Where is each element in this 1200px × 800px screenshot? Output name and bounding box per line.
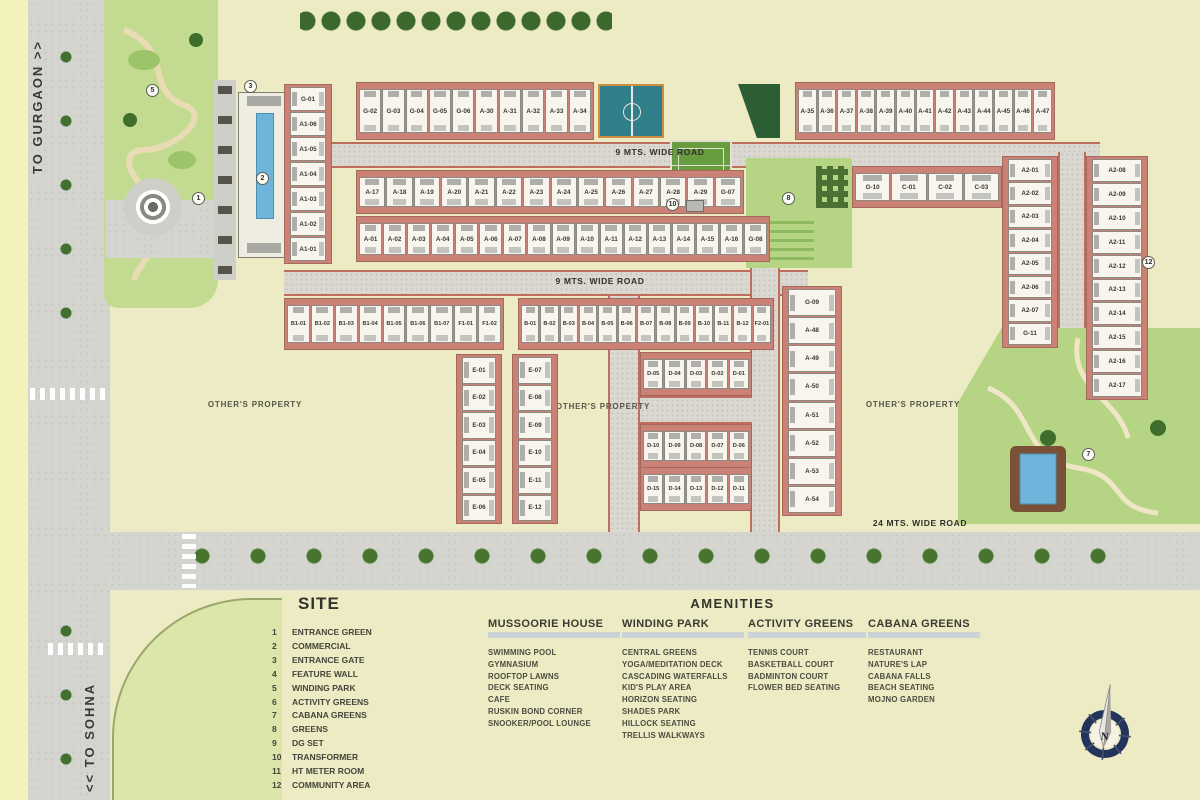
plot-a2-15: A2-15 xyxy=(1092,326,1142,349)
site-legend-list: 1ENTRANCE GREEN2COMMERCIAL3ENTRANCE GATE… xyxy=(272,626,442,793)
legend-item: HORIZON SEATING xyxy=(622,694,744,706)
plot-a-51: A-51 xyxy=(788,402,836,429)
plot-d-12: D-12 xyxy=(707,474,727,504)
site-legend-num: 12 xyxy=(272,779,292,793)
cabana-greens xyxy=(958,328,1200,524)
site-master-plan: TO GURGAON >> << TO SOHNA G-01A1-06A1-05… xyxy=(0,0,1200,800)
plot-g-11: G-11 xyxy=(1008,323,1052,345)
plot-a-40: A-40 xyxy=(896,89,915,133)
plot-d-01: D-01 xyxy=(729,359,749,389)
commercial-roof-top xyxy=(247,96,281,106)
plot-row-3: A-01A-02A-03A-04A-05A-06A-07A-08A-09A-10… xyxy=(356,216,770,262)
plot-row-d2: D-10D-09D-08D-07D-06 xyxy=(640,424,752,468)
compass-rose-icon: N xyxy=(1072,682,1138,770)
plot-b-05: B-05 xyxy=(598,305,616,343)
plot-col-a2-right: A2-08A2-09A2-10A2-11A2-12A2-13A2-14A2-15… xyxy=(1086,156,1148,400)
legend-item: RUSKIN BOND CORNER xyxy=(488,706,620,718)
amenities-col-activity-greens-items: TENNIS COURTBASKETBALL COURTBADMINTON CO… xyxy=(748,647,866,694)
site-legend-num: 6 xyxy=(272,696,292,710)
site-legend-num: 2 xyxy=(272,640,292,654)
legend-item: TENNIS COURT xyxy=(748,647,866,659)
site-legend-label: ACTIVITY GREENS xyxy=(292,696,369,710)
plot-a-18: A-18 xyxy=(386,177,412,207)
legend-item: CENTRAL GREENS xyxy=(622,647,744,659)
plot-a-03: A-03 xyxy=(407,223,430,255)
plot-e-02: E-02 xyxy=(462,385,496,412)
plot-a-23: A-23 xyxy=(523,177,549,207)
plot-a-43: A-43 xyxy=(955,89,974,133)
plot-a2-06: A2-06 xyxy=(1008,276,1052,298)
plot-d-13: D-13 xyxy=(686,474,706,504)
plot-a-27: A-27 xyxy=(633,177,659,207)
plot-row-b: B-01B-02B-03B-04B-05B-06B-07B-08B-09B-10… xyxy=(518,298,774,350)
plot-e-07: E-07 xyxy=(518,357,552,384)
left-road-median-trees-top xyxy=(60,10,72,360)
plot-b-12: B-12 xyxy=(733,305,751,343)
compass-n-label: N xyxy=(1100,731,1109,744)
plot-g-08: G-08 xyxy=(744,223,767,255)
plot-b1-01: B1-01 xyxy=(287,305,310,343)
site-legend-title: SITE xyxy=(298,594,340,614)
plot-d-10: D-10 xyxy=(643,431,663,461)
plot-a-08: A-08 xyxy=(527,223,550,255)
plot-e-06: E-06 xyxy=(462,495,496,522)
plot-a-15: A-15 xyxy=(696,223,719,255)
plot-g-09: G-09 xyxy=(788,289,836,316)
plot-b1-07: B1-07 xyxy=(430,305,453,343)
legend-item: KID'S PLAY AREA xyxy=(622,682,744,694)
plot-a-05: A-05 xyxy=(455,223,478,255)
legend-item: CABANA FALLS xyxy=(868,671,980,683)
amenities-title: AMENITIES xyxy=(600,596,865,611)
plot-d-14: D-14 xyxy=(664,474,684,504)
road-9m-mid-label: 9 MTS. WIDE ROAD xyxy=(500,276,700,286)
plot-a-26: A-26 xyxy=(605,177,631,207)
plot-a-21: A-21 xyxy=(468,177,494,207)
plot-g-07: G-07 xyxy=(715,177,741,207)
plot-e-12: E-12 xyxy=(518,495,552,522)
plot-a-22: A-22 xyxy=(496,177,522,207)
site-legend-label: CABANA GREENS xyxy=(292,709,367,723)
plot-col-a48: G-09A-48A-49A-50A-51A-52A-53A-54 xyxy=(782,286,842,516)
site-legend-row: 2COMMERCIAL xyxy=(272,640,442,654)
plot-a2-13: A2-13 xyxy=(1092,279,1142,302)
legend-item: YOGA/MEDITATION DECK xyxy=(622,659,744,671)
amenities-col-winding-park-title: WINDING PARK xyxy=(622,618,744,638)
plot-f1-01: F1-01 xyxy=(454,305,477,343)
site-legend-num: 8 xyxy=(272,723,292,737)
plot-b-11: B-11 xyxy=(714,305,732,343)
amenities-col-mussoorie-items: SWIMMING POOLGYMNASIUMROOFTOP LAWNSDECK … xyxy=(488,647,620,730)
legend-item: MOJNO GARDEN xyxy=(868,694,980,706)
others-property-right: OTHER'S PROPERTY xyxy=(858,400,968,409)
road-9m-top-label: 9 MTS. WIDE ROAD xyxy=(560,147,760,157)
site-legend-row: 7CABANA GREENS xyxy=(272,709,442,723)
site-legend-row: 9DG SET xyxy=(272,737,442,751)
plot-e-05: E-05 xyxy=(462,467,496,494)
plot-g-01: G-01 xyxy=(290,87,326,111)
plot-b-06: B-06 xyxy=(618,305,636,343)
plot-d-02: D-02 xyxy=(707,359,727,389)
plot-d-08: D-08 xyxy=(686,431,706,461)
site-legend-label: COMMERCIAL xyxy=(292,640,351,654)
site-legend-row: 10TRANSFORMER xyxy=(272,751,442,765)
site-legend-row: 4FEATURE WALL xyxy=(272,668,442,682)
plot-boundary-strip xyxy=(0,0,28,800)
plot-a-46: A-46 xyxy=(1014,89,1033,133)
plot-e-10: E-10 xyxy=(518,440,552,467)
amenities-col-cabana-greens-items: RESTAURANTNATURE'S LAPCABANA FALLSBEACH … xyxy=(868,647,980,706)
plot-a-49: A-49 xyxy=(788,345,836,372)
commercial-roof-bottom xyxy=(247,243,281,253)
plot-a2-04: A2-04 xyxy=(1008,229,1052,251)
site-legend-label: GREENS xyxy=(292,723,328,737)
plot-a2-07: A2-07 xyxy=(1008,299,1052,321)
amenities-col-cabana-greens-title: CABANA GREENS xyxy=(868,618,980,638)
marker-community-area: 12 xyxy=(1142,256,1155,269)
plot-f1-02: F1-02 xyxy=(478,305,501,343)
plot-a2-08: A2-08 xyxy=(1092,159,1142,182)
garden-beds xyxy=(816,166,848,208)
legend-item: BASKETBALL COURT xyxy=(748,659,866,671)
plot-d-15: D-15 xyxy=(643,474,663,504)
entrance-parking-strip xyxy=(214,80,236,280)
basketball-court xyxy=(598,84,664,138)
site-legend-num: 10 xyxy=(272,751,292,765)
plot-a-36: A-36 xyxy=(818,89,837,133)
plot-a2-05: A2-05 xyxy=(1008,253,1052,275)
plot-g-02: G-02 xyxy=(359,89,381,133)
plot-row-d3: D-15D-14D-13D-12D-11 xyxy=(640,467,752,511)
plot-e-09: E-09 xyxy=(518,412,552,439)
marker-commercial: 2 xyxy=(256,172,269,185)
plot-a-30: A-30 xyxy=(475,89,497,133)
plot-a-19: A-19 xyxy=(414,177,440,207)
site-legend-row: 11HT METER ROOM xyxy=(272,765,442,779)
plot-a2-03: A2-03 xyxy=(1008,206,1052,228)
plot-d-06: D-06 xyxy=(729,431,749,461)
winding-park-paths xyxy=(104,0,218,308)
legend-item: BEACH SEATING xyxy=(868,682,980,694)
plot-f2-01: F2-01 xyxy=(753,305,771,343)
others-property-left: OTHER'S PROPERTY xyxy=(200,400,310,409)
legend-item: SHADES PARK xyxy=(622,706,744,718)
site-legend-row: 12COMMUNITY AREA xyxy=(272,779,442,793)
site-legend-num: 3 xyxy=(272,654,292,668)
marker-entrance-green: 1 xyxy=(192,192,205,205)
plot-a-06: A-06 xyxy=(479,223,502,255)
top-hedge-trees xyxy=(300,8,612,34)
legend-item: HILLOCK SEATING xyxy=(622,718,744,730)
plot-col-e-right: E-07E-08E-09E-10E-11E-12 xyxy=(512,354,558,524)
plot-e-08: E-08 xyxy=(518,385,552,412)
commercial-pool xyxy=(256,113,274,219)
site-legend-num: 5 xyxy=(272,682,292,696)
legend-item: SWIMMING POOL xyxy=(488,647,620,659)
plot-a-04: A-04 xyxy=(431,223,454,255)
plot-a2-10: A2-10 xyxy=(1092,207,1142,230)
plot-a-11: A-11 xyxy=(600,223,623,255)
legend-item: RESTAURANT xyxy=(868,647,980,659)
site-legend-label: HT METER ROOM xyxy=(292,765,364,779)
site-legend-label: DG SET xyxy=(292,737,324,751)
plot-c-02: C-02 xyxy=(928,173,963,201)
plot-a-07: A-07 xyxy=(503,223,526,255)
plot-c-01: C-01 xyxy=(891,173,926,201)
plot-a-25: A-25 xyxy=(578,177,604,207)
legend-item: FLOWER BED SEATING xyxy=(748,682,866,694)
site-legend-row: 1ENTRANCE GREEN xyxy=(272,626,442,640)
plot-a-31: A-31 xyxy=(499,89,521,133)
amenities-col-winding-park: WINDING PARK CENTRAL GREENSYOGA/MEDITATI… xyxy=(622,618,744,741)
transformer-box xyxy=(686,200,704,212)
plot-col-a1: G-01A1-06A1-05A1-04A1-03A1-02A1-01 xyxy=(284,84,332,264)
plot-a-02: A-02 xyxy=(383,223,406,255)
plot-a1-02: A1-02 xyxy=(290,212,326,236)
legend-item: CAFE xyxy=(488,694,620,706)
amenities-col-cabana-greens: CABANA GREENS RESTAURANTNATURE'S LAPCABA… xyxy=(868,618,980,706)
plot-a2-12: A2-12 xyxy=(1092,255,1142,278)
site-legend-row: 5WINDING PARK xyxy=(272,682,442,696)
plot-a-24: A-24 xyxy=(551,177,577,207)
plot-b-09: B-09 xyxy=(676,305,694,343)
plot-b-10: B-10 xyxy=(695,305,713,343)
plot-row-b1: B1-01B1-02B1-03B1-04B1-05B1-06B1-07F1-01… xyxy=(284,298,504,350)
to-gurgaon-label: TO GURGAON >> xyxy=(30,14,45,174)
plot-a-53: A-53 xyxy=(788,458,836,485)
plot-row-c: G-10C-01C-02C-03 xyxy=(852,166,1002,208)
plot-g-10: G-10 xyxy=(855,173,890,201)
legend-item: SNOOKER/POOL LOUNGE xyxy=(488,718,620,730)
plot-b-07: B-07 xyxy=(637,305,655,343)
roundabout xyxy=(124,178,182,236)
compass: N xyxy=(1072,682,1138,770)
plot-a-16: A-16 xyxy=(720,223,743,255)
plot-g-06: G-06 xyxy=(452,89,474,133)
amenities-col-activity-greens-title: ACTIVITY GREENS xyxy=(748,618,866,638)
amenities-col-winding-park-items: CENTRAL GREENSYOGA/MEDITATION DECKCASCAD… xyxy=(622,647,744,741)
plot-a1-03: A1-03 xyxy=(290,187,326,211)
road-24m-crossing xyxy=(182,534,196,588)
plot-e-03: E-03 xyxy=(462,412,496,439)
plot-b1-03: B1-03 xyxy=(335,305,358,343)
site-legend-num: 7 xyxy=(272,709,292,723)
plot-d-05: D-05 xyxy=(643,359,663,389)
legend-item: GYMNASIUM xyxy=(488,659,620,671)
left-road-crossing xyxy=(30,388,108,400)
site-legend-label: ENTRANCE GREEN xyxy=(292,626,372,640)
plot-b-08: B-08 xyxy=(656,305,674,343)
plot-b-01: B-01 xyxy=(521,305,539,343)
plot-a-33: A-33 xyxy=(545,89,567,133)
site-legend-label: TRANSFORMER xyxy=(292,751,358,765)
plot-d-11: D-11 xyxy=(729,474,749,504)
site-legend-num: 1 xyxy=(272,626,292,640)
plot-c-03: C-03 xyxy=(964,173,999,201)
site-legend-label: FEATURE WALL xyxy=(292,668,358,682)
plot-d-03: D-03 xyxy=(686,359,706,389)
road-24m-label: 24 MTS. WIDE ROAD xyxy=(820,518,1020,528)
site-legend-num: 11 xyxy=(272,765,292,779)
plot-g-03: G-03 xyxy=(382,89,404,133)
to-sohna-label: << TO SOHNA xyxy=(82,612,97,792)
left-road-crossing-2 xyxy=(48,643,108,655)
plot-a-37: A-37 xyxy=(837,89,856,133)
plot-a-17: A-17 xyxy=(359,177,385,207)
amenities-col-mussoorie: MUSSOORIE HOUSE SWIMMING POOLGYMNASIUMRO… xyxy=(488,618,620,730)
plot-a-42: A-42 xyxy=(935,89,954,133)
site-legend-row: 3ENTRANCE GATE xyxy=(272,654,442,668)
plot-a-47: A-47 xyxy=(1033,89,1052,133)
plot-a-12: A-12 xyxy=(624,223,647,255)
plot-a-10: A-10 xyxy=(576,223,599,255)
legend-item: BADMINTON COURT xyxy=(748,671,866,683)
plot-col-e-left: E-01E-02E-03E-04E-05E-06 xyxy=(456,354,502,524)
plot-g-05: G-05 xyxy=(429,89,451,133)
legend-item: TRELLIS WALKWAYS xyxy=(622,730,744,742)
site-legend-label: COMMUNITY AREA xyxy=(292,779,370,793)
plot-a-45: A-45 xyxy=(994,89,1013,133)
bottom-left-green xyxy=(112,598,282,800)
site-legend-row: 6ACTIVITY GREENS xyxy=(272,696,442,710)
marker-winding-park: 5 xyxy=(146,84,159,97)
plot-a1-01: A1-01 xyxy=(290,237,326,261)
plot-a-34: A-34 xyxy=(569,89,591,133)
plot-a-35: A-35 xyxy=(798,89,817,133)
plot-e-04: E-04 xyxy=(462,440,496,467)
plot-a-44: A-44 xyxy=(974,89,993,133)
plot-a-32: A-32 xyxy=(522,89,544,133)
plot-a-13: A-13 xyxy=(648,223,671,255)
plot-a-50: A-50 xyxy=(788,373,836,400)
plot-col-a2-left: A2-01A2-02A2-03A2-04A2-05A2-06A2-07G-11 xyxy=(1002,156,1058,348)
plot-a1-05: A1-05 xyxy=(290,137,326,161)
plot-a2-17: A2-17 xyxy=(1092,374,1142,397)
plot-row-top-left: G-02G-03G-04G-05G-06A-30A-31A-32A-33A-34 xyxy=(356,82,594,140)
legend-item: ROOFTOP LAWNS xyxy=(488,671,620,683)
plot-a-54: A-54 xyxy=(788,486,836,513)
others-property-center: OTHER'S PROPERTY xyxy=(548,402,658,411)
site-legend-label: ENTRANCE GATE xyxy=(292,654,365,668)
amenities-col-activity-greens: ACTIVITY GREENS TENNIS COURTBASKETBALL C… xyxy=(748,618,866,694)
plot-a1-06: A1-06 xyxy=(290,112,326,136)
plot-a-41: A-41 xyxy=(916,89,935,133)
feature-green-wedge xyxy=(738,84,780,138)
plot-b-03: B-03 xyxy=(560,305,578,343)
plot-a2-14: A2-14 xyxy=(1092,302,1142,325)
plot-d-09: D-09 xyxy=(664,431,684,461)
plot-row-top-right: A-35A-36A-37A-38A-39A-40A-41A-42A-43A-44… xyxy=(795,82,1055,140)
plot-a-14: A-14 xyxy=(672,223,695,255)
plot-d-07: D-07 xyxy=(707,431,727,461)
legend-item: CASCADING WATERFALLS xyxy=(622,671,744,683)
winding-park xyxy=(104,0,218,308)
plot-b-04: B-04 xyxy=(579,305,597,343)
legend-item: DECK SEATING xyxy=(488,682,620,694)
plot-a2-11: A2-11 xyxy=(1092,231,1142,254)
left-road-median-trees-bottom xyxy=(60,600,72,790)
legend-item: NATURE'S LAP xyxy=(868,659,980,671)
plot-b1-04: B1-04 xyxy=(359,305,382,343)
plot-a-38: A-38 xyxy=(857,89,876,133)
plot-a2-16: A2-16 xyxy=(1092,350,1142,373)
plot-a2-09: A2-09 xyxy=(1092,183,1142,206)
plot-d-04: D-04 xyxy=(664,359,684,389)
plot-b-02: B-02 xyxy=(540,305,558,343)
site-legend-row: 8GREENS xyxy=(272,723,442,737)
plot-a2-02: A2-02 xyxy=(1008,182,1052,204)
plot-b1-05: B1-05 xyxy=(383,305,406,343)
marker-transformer: 10 xyxy=(666,198,679,211)
plot-a2-01: A2-01 xyxy=(1008,159,1052,181)
plot-row-d1: D-05D-04D-03D-02D-01 xyxy=(640,352,752,396)
plot-a-20: A-20 xyxy=(441,177,467,207)
cabana-paths xyxy=(958,328,1200,524)
plot-a-52: A-52 xyxy=(788,430,836,457)
site-legend-num: 9 xyxy=(272,737,292,751)
site-legend-label: WINDING PARK xyxy=(292,682,356,696)
site-legend-num: 4 xyxy=(272,668,292,682)
plot-e-11: E-11 xyxy=(518,467,552,494)
plot-a-39: A-39 xyxy=(876,89,895,133)
plot-e-01: E-01 xyxy=(462,357,496,384)
plot-b1-02: B1-02 xyxy=(311,305,334,343)
marker-greens: 8 xyxy=(782,192,795,205)
plot-b1-06: B1-06 xyxy=(406,305,429,343)
marker-cabana-greens: 7 xyxy=(1082,448,1095,461)
plot-a-09: A-09 xyxy=(552,223,575,255)
plot-a-48: A-48 xyxy=(788,317,836,344)
marker-entrance-gate: 3 xyxy=(244,80,257,93)
road-24m-median-trees xyxy=(180,546,1120,566)
plot-a1-04: A1-04 xyxy=(290,162,326,186)
plot-g-04: G-04 xyxy=(406,89,428,133)
amenities-col-mussoorie-title: MUSSOORIE HOUSE xyxy=(488,618,620,638)
plot-a-01: A-01 xyxy=(359,223,382,255)
